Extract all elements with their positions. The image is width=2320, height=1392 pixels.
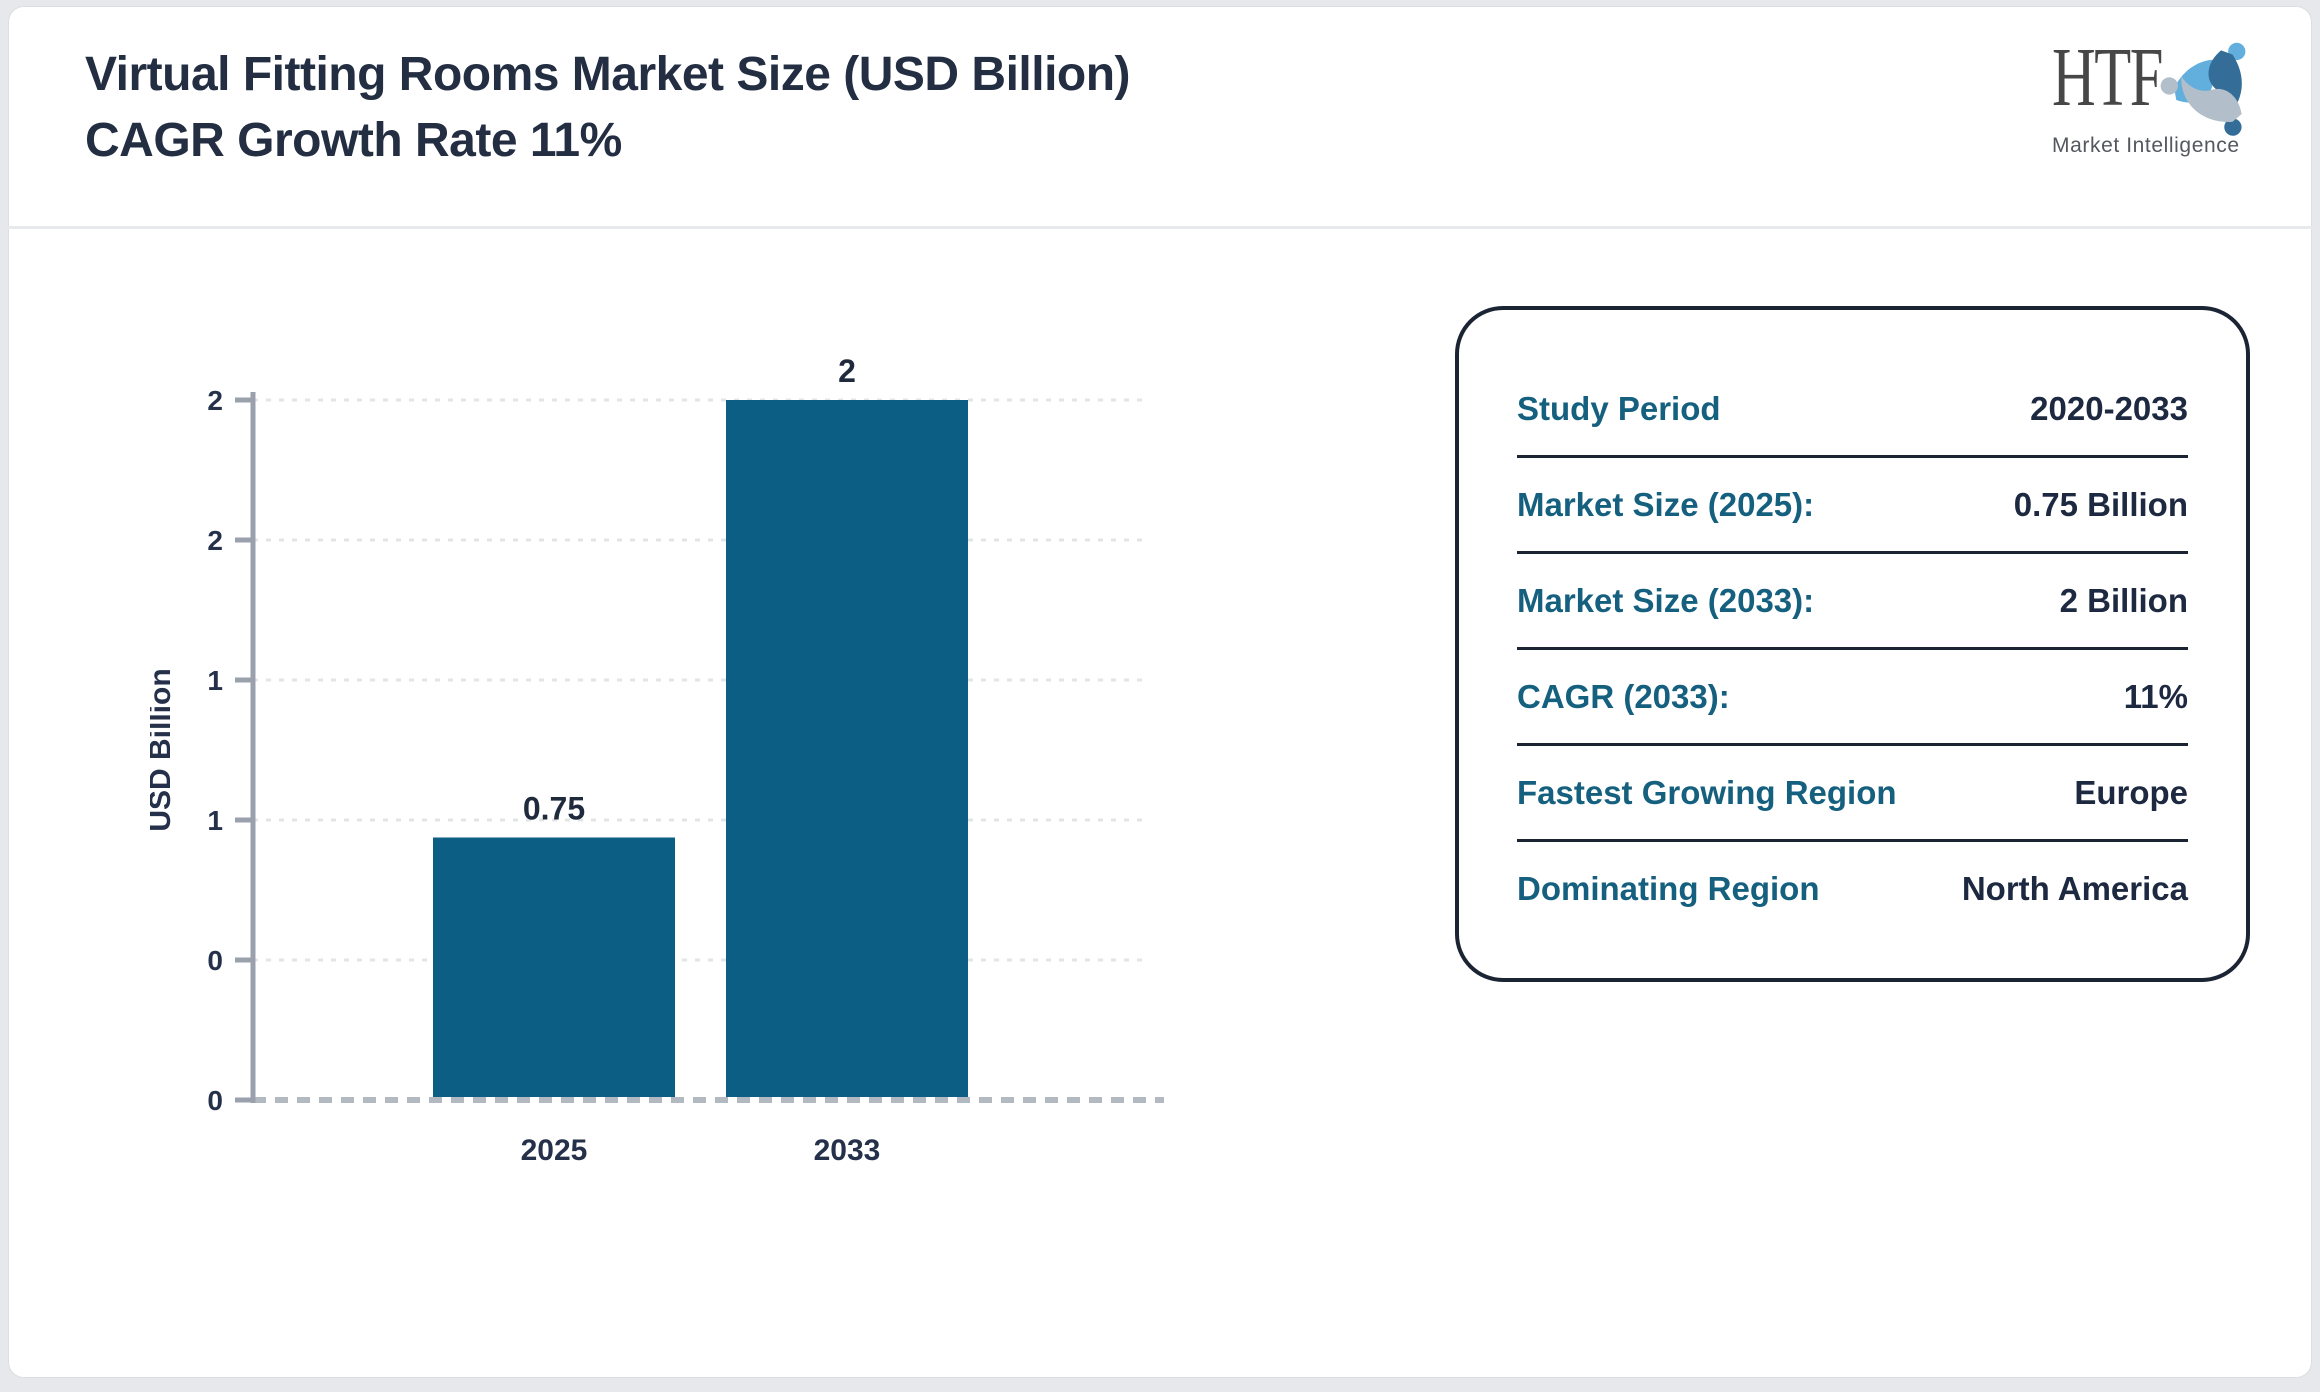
info-row-cagr: CAGR (2033): 11% <box>1517 650 2188 746</box>
header-divider <box>8 226 2312 229</box>
info-row-value: 2020-2033 <box>2030 390 2188 428</box>
info-row-market-size-2025: Market Size (2025): 0.75 Billion <box>1517 458 2188 554</box>
y-tick-label: 1 <box>207 665 223 696</box>
info-row-label: CAGR (2033): <box>1517 678 1730 716</box>
bar-value-label: 2 <box>838 353 856 389</box>
bar-value-label: 0.75 <box>523 791 585 827</box>
info-row-value: 0.75 Billion <box>2014 486 2188 524</box>
info-row-label: Market Size (2025): <box>1517 486 1814 524</box>
info-row-value: Europe <box>2074 774 2188 812</box>
bar-chart: 2211000.75202522033USD Billion <box>150 330 1200 1200</box>
logo-row: HTF <box>2052 30 2282 140</box>
page-title: Virtual Fitting Rooms Market Size (USD B… <box>85 42 1485 174</box>
y-tick-label: 0 <box>207 945 223 976</box>
title-line-2: CAGR Growth Rate 11% <box>85 108 1485 174</box>
page: Virtual Fitting Rooms Market Size (USD B… <box>0 0 2320 1392</box>
x-tick-label: 2033 <box>814 1134 881 1167</box>
info-panel: Study Period 2020-2033 Market Size (2025… <box>1455 306 2250 982</box>
info-row-value: North America <box>1962 870 2188 908</box>
info-row-value: 2 Billion <box>2060 582 2188 620</box>
info-row-dominating-region: Dominating Region North America <box>1517 842 2188 935</box>
bar-2025 <box>433 838 675 1101</box>
info-row-label: Study Period <box>1517 390 1721 428</box>
info-row-study-period: Study Period 2020-2033 <box>1517 362 2188 458</box>
y-tick-label: 2 <box>207 385 223 416</box>
title-line-1: Virtual Fitting Rooms Market Size (USD B… <box>85 42 1485 108</box>
logo-brand-text: HTF <box>2052 30 2162 126</box>
bar-2033 <box>726 400 968 1100</box>
info-row-value: 11% <box>2124 678 2188 716</box>
y-tick-label: 2 <box>207 525 223 556</box>
info-row-label: Market Size (2033): <box>1517 582 1814 620</box>
brand-logo: HTF Market Intelligence <box>2052 30 2282 158</box>
info-row-label: Dominating Region <box>1517 870 1819 908</box>
y-tick-label: 1 <box>207 805 223 836</box>
x-tick-label: 2025 <box>521 1134 588 1167</box>
info-row-market-size-2033: Market Size (2033): 2 Billion <box>1517 554 2188 650</box>
info-row-fastest-growing-region: Fastest Growing Region Europe <box>1517 746 2188 842</box>
y-axis-title: USD Billion <box>150 668 177 831</box>
y-tick-label: 0 <box>207 1085 223 1116</box>
info-row-label: Fastest Growing Region <box>1517 774 1897 812</box>
logo-swirl-people-icon <box>2159 32 2267 140</box>
